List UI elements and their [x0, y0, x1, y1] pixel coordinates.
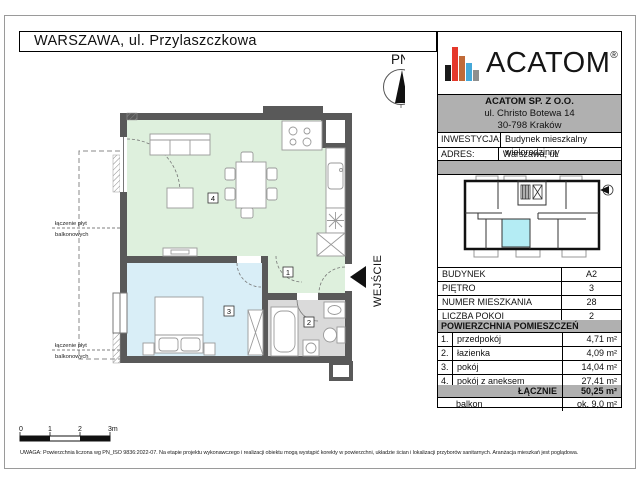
key-plan-drawing — [438, 175, 621, 267]
registered-mark: ® — [610, 50, 618, 61]
table-row: BUDYNEK A2 — [438, 268, 621, 282]
wardrobe — [248, 310, 263, 355]
note-line: łączenie płyt — [55, 343, 87, 349]
company-street: ul. Christo Botewa 14 — [438, 108, 621, 120]
floor-plan-drawing: PN łączenie płyt balkonowych łączenie pł… — [40, 50, 405, 418]
scale-tick-label: 2 — [78, 426, 82, 433]
row-label: BUDYNEK — [438, 268, 561, 281]
table-row: PIĘTRO 3 — [438, 282, 621, 296]
row-value: 28 — [561, 296, 621, 309]
wall-hatch — [113, 155, 120, 192]
key-plan — [438, 175, 621, 268]
dishwasher — [326, 208, 345, 233]
room-name: przedpokój — [453, 333, 562, 346]
kitchen-counter — [326, 148, 345, 208]
inwestycja-label: INWESTYCJA: — [438, 133, 501, 147]
nightstand — [143, 343, 154, 355]
key-highlight-unit — [502, 219, 530, 247]
table-row: 3. pokój 14,04 m² — [438, 361, 621, 375]
compass-label: PN — [391, 52, 405, 67]
compass-icon: PN — [384, 52, 406, 108]
bath-sink — [324, 302, 345, 318]
coffee-table — [167, 188, 193, 208]
inwestycja-value: Budynek mieszkalny wielorodzinny — [501, 133, 621, 147]
room-label-bedroom: 3 — [227, 307, 231, 316]
balcony-row: balkon ok. 9,0 m² — [438, 398, 621, 411]
scale-tick-label: 3m — [108, 426, 118, 433]
areas-header: POWIERZCHNIA POMIESZCZEŃ — [438, 320, 621, 333]
key-compass-icon — [600, 185, 613, 195]
company-address-band: ACATOM SP. Z O.O. ul. Christo Botewa 14 … — [438, 95, 621, 133]
toilet — [324, 327, 346, 343]
entrance: WEJŚCIE — [350, 255, 384, 307]
wall-hatch — [113, 333, 120, 363]
room-area: 4,71 m² — [562, 333, 621, 346]
adres-label: ADRES: — [438, 148, 499, 162]
room-no: 3. — [438, 361, 453, 374]
logo-block: ACATOM® — [438, 32, 621, 95]
total-label: ŁĄCZNIE — [438, 385, 562, 397]
sheet-title: WARSZAWA, ul. Przylaszczkowa — [34, 33, 257, 49]
room-label-bath: 2 — [307, 318, 311, 327]
balcony-label: balkon — [438, 398, 562, 411]
note-line: balkonowych — [55, 232, 89, 238]
room-area: 4,09 m² — [562, 347, 621, 360]
note-line: łączenie płyt — [55, 221, 87, 227]
table-row: 1. przedpokój 4,71 m² — [438, 333, 621, 347]
key-building-outline — [465, 181, 599, 249]
balcony-value: ok. 9,0 m² — [562, 398, 621, 411]
sofa — [150, 134, 210, 155]
entrance-arrow-icon — [350, 266, 366, 288]
floorplan-sheet: WARSZAWA, ul. Przylaszczkowa ACATOM® ACA… — [0, 0, 640, 480]
scale-tick-label: 1 — [48, 426, 52, 433]
kitchen-sink — [328, 163, 343, 189]
company-city: 30-798 Kraków — [438, 120, 621, 132]
note-line: balkonowych — [55, 354, 89, 360]
fridge — [317, 233, 345, 256]
unit-info-table: BUDYNEK A2 PIĘTRO 3 NUMER MIESZKANIA 28 … — [438, 268, 621, 320]
total-value: 50,25 m² — [562, 385, 621, 397]
washing-machine — [303, 340, 319, 356]
row-value: A2 — [561, 268, 621, 281]
gray-separator — [438, 161, 621, 175]
total-row: ŁĄCZNIE 50,25 m² — [438, 385, 621, 398]
nightstand — [204, 343, 215, 355]
company-name: ACATOM SP. Z O.O. — [438, 96, 621, 108]
room-label-hall: 1 — [286, 268, 290, 277]
balcony-joint-note: łączenie płyt balkonowych łączenie płyt … — [52, 221, 120, 360]
room-name: łazienka — [453, 347, 562, 360]
shaft — [326, 120, 345, 143]
room-no: 2. — [438, 347, 453, 360]
table-row: NUMER MIESZKANIA 28 — [438, 296, 621, 310]
room-label-living: 4 — [211, 194, 215, 203]
table-row: 2. łazienka 4,09 m² — [438, 347, 621, 361]
areas-table: 1. przedpokój 4,71 m² 2. łazienka 4,09 m… — [438, 333, 621, 385]
project-info: INWESTYCJA: Budynek mieszkalny wielorodz… — [438, 133, 621, 161]
entrance-label: WEJŚCIE — [371, 255, 384, 307]
adres-value: Warszawa, ul. Przylaszczkowa — [499, 148, 621, 162]
room-name: pokój — [453, 361, 562, 374]
room-area: 14,04 m² — [562, 361, 621, 374]
row-label: PIĘTRO — [438, 282, 561, 295]
scale-bar: 0 1 2 3m — [18, 424, 138, 446]
info-panel: ACATOM® ACATOM SP. Z O.O. ul. Christo Bo… — [437, 31, 622, 408]
row-label: NUMER MIESZKANIA — [438, 296, 561, 309]
tv-cabinet — [163, 248, 197, 256]
disclaimer-note: UWAGA: Powierzchnia liczona wg PN_ISO 98… — [20, 450, 601, 456]
external-pillar — [331, 363, 351, 379]
sheet-title-bar: WARSZAWA, ul. Przylaszczkowa — [19, 31, 437, 52]
row-value: 3 — [561, 282, 621, 295]
acatom-logo-bars-icon — [445, 45, 480, 81]
room-no: 1. — [438, 333, 453, 346]
bathtub — [271, 307, 298, 356]
brand-name: ACATOM® — [486, 47, 618, 80]
stove — [282, 121, 322, 150]
scale-tick-label: 0 — [19, 426, 23, 433]
wall-hatch — [127, 113, 137, 120]
hall-area — [262, 256, 345, 293]
